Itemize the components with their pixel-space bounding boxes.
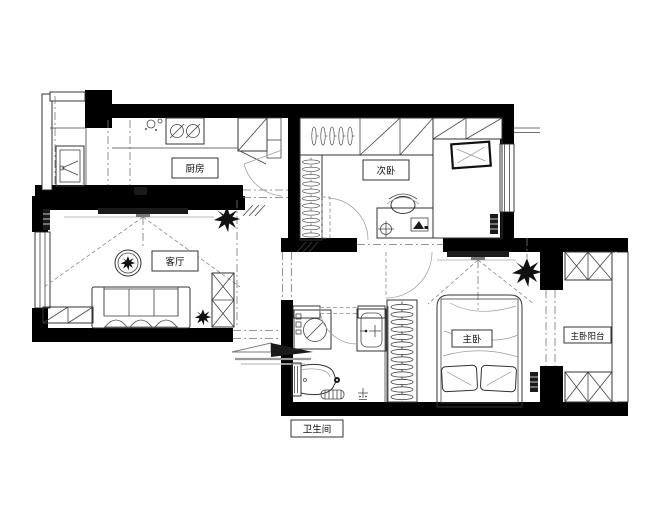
storage-cabinet-top [565, 252, 612, 280]
room-label-master-balcony: 主卧阳台 [564, 327, 611, 343]
master-bedroom-label-text: 主卧 [462, 334, 482, 346]
pendant-plant-icon [512, 258, 542, 287]
radiator-icon [490, 214, 498, 234]
shoe-cabinet [212, 273, 234, 327]
low-cabinet [43, 307, 93, 323]
room-kitchen [50, 118, 282, 196]
sofa-icon [92, 287, 190, 328]
kitchen-label-text: 厨房 [185, 163, 204, 175]
chair-icon [387, 194, 419, 214]
radiator-icon [530, 372, 538, 392]
pantry-cabinet [267, 118, 281, 158]
room-living [43, 207, 240, 328]
balcony-window [612, 252, 628, 402]
desk-lamp-icon [378, 221, 394, 237]
laptop-icon [411, 218, 428, 231]
room-label-kitchen: 厨房 [172, 158, 218, 178]
bathroom-wall-hatch [293, 306, 320, 318]
floor-plan-page: 厨房 次卧 客厅 主卧 主卧阳台 卫生间 [0, 0, 650, 520]
living-label-text: 客厅 [165, 256, 185, 268]
wardrobe-hangers [300, 127, 355, 240]
living-room-window [35, 232, 50, 308]
master-door-arc [386, 252, 432, 298]
room-label-living: 客厅 [152, 251, 198, 271]
bedroom2-door-arc [322, 197, 368, 240]
bathroom-label-text: 卫生间 [303, 424, 332, 436]
hob-icon [145, 119, 162, 131]
entry-arrow-icon [232, 343, 313, 364]
plant-icon [195, 309, 212, 325]
kitchen-sink [56, 146, 84, 186]
storage-cabinet-bottom [565, 372, 612, 402]
floor-plan: 厨房 次卧 客厅 主卧 主卧阳台 卫生间 [0, 0, 650, 520]
bath-mat-icon [321, 390, 344, 399]
master-balcony-label-text: 主卧阳台 [570, 331, 604, 342]
room-label-master-bedroom: 主卧 [452, 330, 492, 347]
kitchen-balcony-window [42, 92, 85, 190]
pillow-icon [441, 365, 477, 392]
double-bed-icon [437, 295, 522, 407]
second-bedroom-label-text: 次卧 [376, 165, 396, 177]
tv-icon [437, 251, 516, 260]
pillow-icon [451, 142, 491, 169]
room-label-second-bedroom: 次卧 [363, 160, 409, 180]
room-label-bathroom: 卫生间 [291, 420, 343, 437]
shower-drain-icon [358, 388, 368, 400]
plant-icon [214, 207, 240, 232]
radiator-icon [43, 209, 50, 230]
wardrobe-hangers [387, 300, 417, 402]
room-bathroom [292, 306, 388, 402]
room-master-bedroom [386, 251, 542, 407]
ceiling-lamp-icon [115, 250, 141, 276]
stove-icon [166, 118, 204, 144]
desk [377, 208, 433, 238]
door-stopper [134, 187, 147, 195]
pillow-icon [480, 365, 516, 392]
kitchen-door-arc [244, 150, 282, 196]
